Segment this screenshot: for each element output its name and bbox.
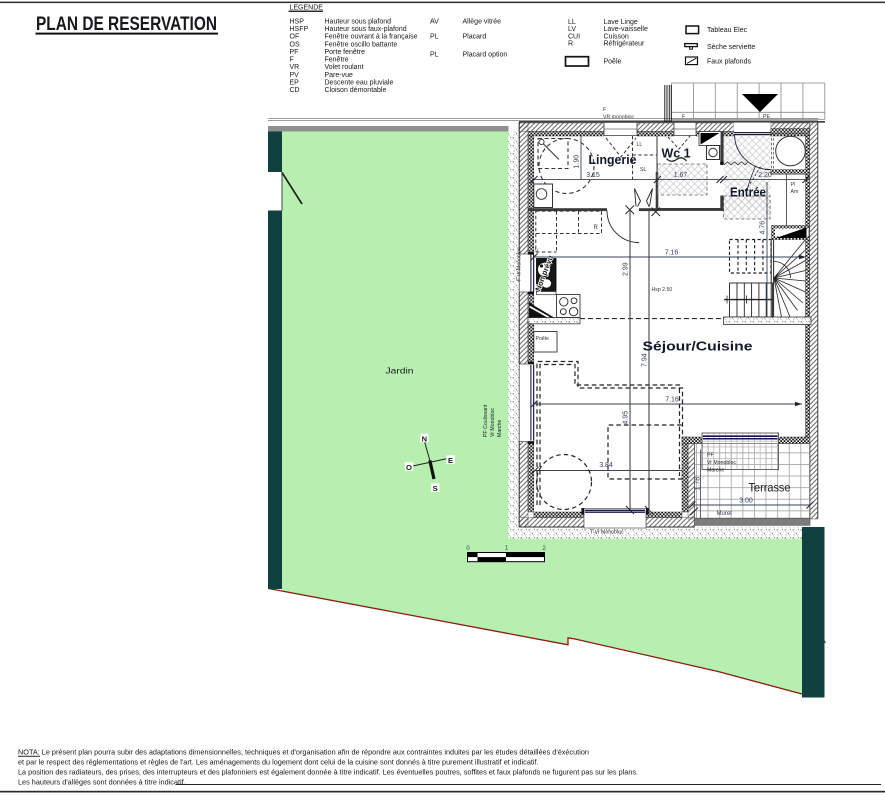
- svg-text:1.78: 1.78: [695, 477, 702, 491]
- svg-text:Cloison démontable: Cloison démontable: [325, 87, 387, 94]
- svg-text:R: R: [568, 41, 573, 48]
- svg-text:7.94: 7.94: [642, 353, 649, 367]
- svg-text:NOTA: Le présent plan pourra s: NOTA: Le présent plan pourra subir des a…: [18, 748, 589, 757]
- svg-text:R: R: [594, 225, 599, 231]
- svg-text:F Vr Monobloc: F Vr Monobloc: [517, 247, 523, 281]
- svg-text:Hauteur sous plafond: Hauteur sous plafond: [325, 19, 392, 26]
- svg-text:F: F: [603, 107, 606, 113]
- svg-text:Vr Monobloc: Vr Monobloc: [490, 408, 496, 437]
- svg-text:Entrée: Entrée: [730, 185, 766, 200]
- svg-text:PF: PF: [290, 49, 299, 56]
- svg-text:1.67: 1.67: [674, 172, 688, 179]
- svg-text:Cuisson: Cuisson: [604, 33, 629, 40]
- svg-text:VR monobloc: VR monobloc: [603, 115, 635, 121]
- svg-text:Fenêtre oscillo battante: Fenêtre oscillo battante: [325, 41, 398, 48]
- svg-text:3.00: 3.00: [739, 498, 753, 505]
- svg-text:Muret: Muret: [717, 511, 733, 517]
- svg-text:S: S: [433, 484, 438, 493]
- svg-text:F: F: [682, 114, 685, 120]
- svg-text:Hsp 2.50: Hsp 2.50: [652, 287, 673, 293]
- svg-text:3.84: 3.84: [599, 462, 613, 469]
- svg-text:CUI: CUI: [568, 33, 580, 40]
- svg-text:et par le respect des réglemen: et par le respect des réglementations et…: [18, 758, 539, 767]
- svg-text:PL: PL: [430, 52, 439, 59]
- svg-text:LL: LL: [568, 19, 576, 26]
- svg-text:2.99: 2.99: [623, 262, 630, 276]
- svg-text:Lingerie: Lingerie: [589, 152, 637, 167]
- svg-text:Jardin: Jardin: [386, 366, 414, 376]
- svg-text:PE: PE: [763, 114, 770, 120]
- svg-text:Wc 1: Wc 1: [662, 146, 691, 161]
- svg-text:EP: EP: [290, 79, 300, 86]
- svg-text:HSFP: HSFP: [290, 26, 309, 33]
- svg-text:Lave Linge: Lave Linge: [604, 19, 638, 26]
- svg-text:7.16: 7.16: [665, 397, 679, 404]
- svg-text:E: E: [448, 456, 453, 465]
- svg-text:PLAN DE RESERVATION: PLAN DE RESERVATION: [36, 13, 217, 35]
- svg-text:PV: PV: [290, 72, 300, 79]
- svg-text:2.20: 2.20: [758, 172, 772, 179]
- svg-text:Volet roulant: Volet roulant: [325, 64, 364, 71]
- svg-text:3.15: 3.15: [586, 172, 600, 179]
- svg-text:VR: VR: [290, 64, 300, 71]
- svg-text:Placard: Placard: [463, 34, 487, 41]
- svg-text:CD: CD: [290, 87, 300, 94]
- svg-text:Descente eau pluviale: Descente eau pluviale: [325, 79, 394, 86]
- svg-text:Placard option: Placard option: [463, 52, 508, 59]
- svg-text:Poêle: Poêle: [536, 336, 549, 342]
- svg-text:Vr Monobloc: Vr Monobloc: [707, 460, 736, 466]
- svg-text:Pare-vue: Pare-vue: [325, 72, 354, 79]
- svg-text:Faux plafonds: Faux plafonds: [707, 59, 751, 66]
- svg-text:Allège vitrée: Allège vitrée: [463, 19, 502, 26]
- svg-text:PF: PF: [707, 453, 714, 459]
- svg-text:SL: SL: [640, 167, 646, 173]
- svg-text:Séjour/Cuisine: Séjour/Cuisine: [643, 339, 753, 354]
- svg-text:Am: Am: [791, 189, 799, 195]
- svg-text:Fenêtre ouvrant à la française: Fenêtre ouvrant à la française: [325, 34, 418, 41]
- svg-text:La position des radiateurs, de: La position des radiateurs, des prises, …: [18, 768, 638, 777]
- svg-text:Tableau Elec: Tableau Elec: [707, 27, 748, 34]
- svg-text:F: F: [290, 57, 294, 64]
- svg-text:LEGENDE: LEGENDE: [290, 5, 324, 12]
- svg-text:Poêle: Poêle: [604, 59, 622, 66]
- svg-text:4.95: 4.95: [623, 411, 630, 425]
- svg-text:AV: AV: [430, 19, 439, 26]
- svg-text:PL: PL: [430, 34, 439, 41]
- svg-text:Fenêtre: Fenêtre: [325, 57, 349, 64]
- svg-text:Porte fenêtre: Porte fenêtre: [325, 49, 366, 56]
- svg-text:4.76: 4.76: [760, 221, 767, 235]
- svg-text:Lave-vaisselle: Lave-vaisselle: [604, 26, 648, 33]
- svg-text:OF: OF: [290, 34, 300, 41]
- svg-text:Pl: Pl: [791, 182, 796, 188]
- svg-text:PF Coulissant: PF Coulissant: [483, 404, 489, 437]
- svg-text:Hauteur sous faux-plafond: Hauteur sous faux-plafond: [325, 26, 407, 33]
- svg-text:N: N: [422, 434, 427, 443]
- svg-text:Terrasse: Terrasse: [749, 481, 791, 495]
- svg-text:HSP: HSP: [290, 19, 305, 26]
- svg-text:7.16: 7.16: [665, 250, 679, 257]
- svg-text:1.90: 1.90: [574, 155, 581, 169]
- svg-text:O: O: [406, 463, 412, 472]
- svg-text:Réfrigérateur: Réfrigérateur: [604, 41, 646, 48]
- svg-text:LL: LL: [637, 142, 643, 148]
- svg-text:Sèche serviette: Sèche serviette: [707, 44, 755, 51]
- svg-text:Marche: Marche: [707, 468, 724, 474]
- svg-text:Les hauteurs d'allèges sont do: Les hauteurs d'allèges sont données à ti…: [18, 778, 186, 787]
- svg-text:T-Vr Monobloc: T-Vr Monobloc: [590, 530, 624, 536]
- svg-text:OS: OS: [290, 41, 300, 48]
- svg-text:LV: LV: [568, 26, 576, 33]
- svg-text:Marche: Marche: [497, 420, 503, 437]
